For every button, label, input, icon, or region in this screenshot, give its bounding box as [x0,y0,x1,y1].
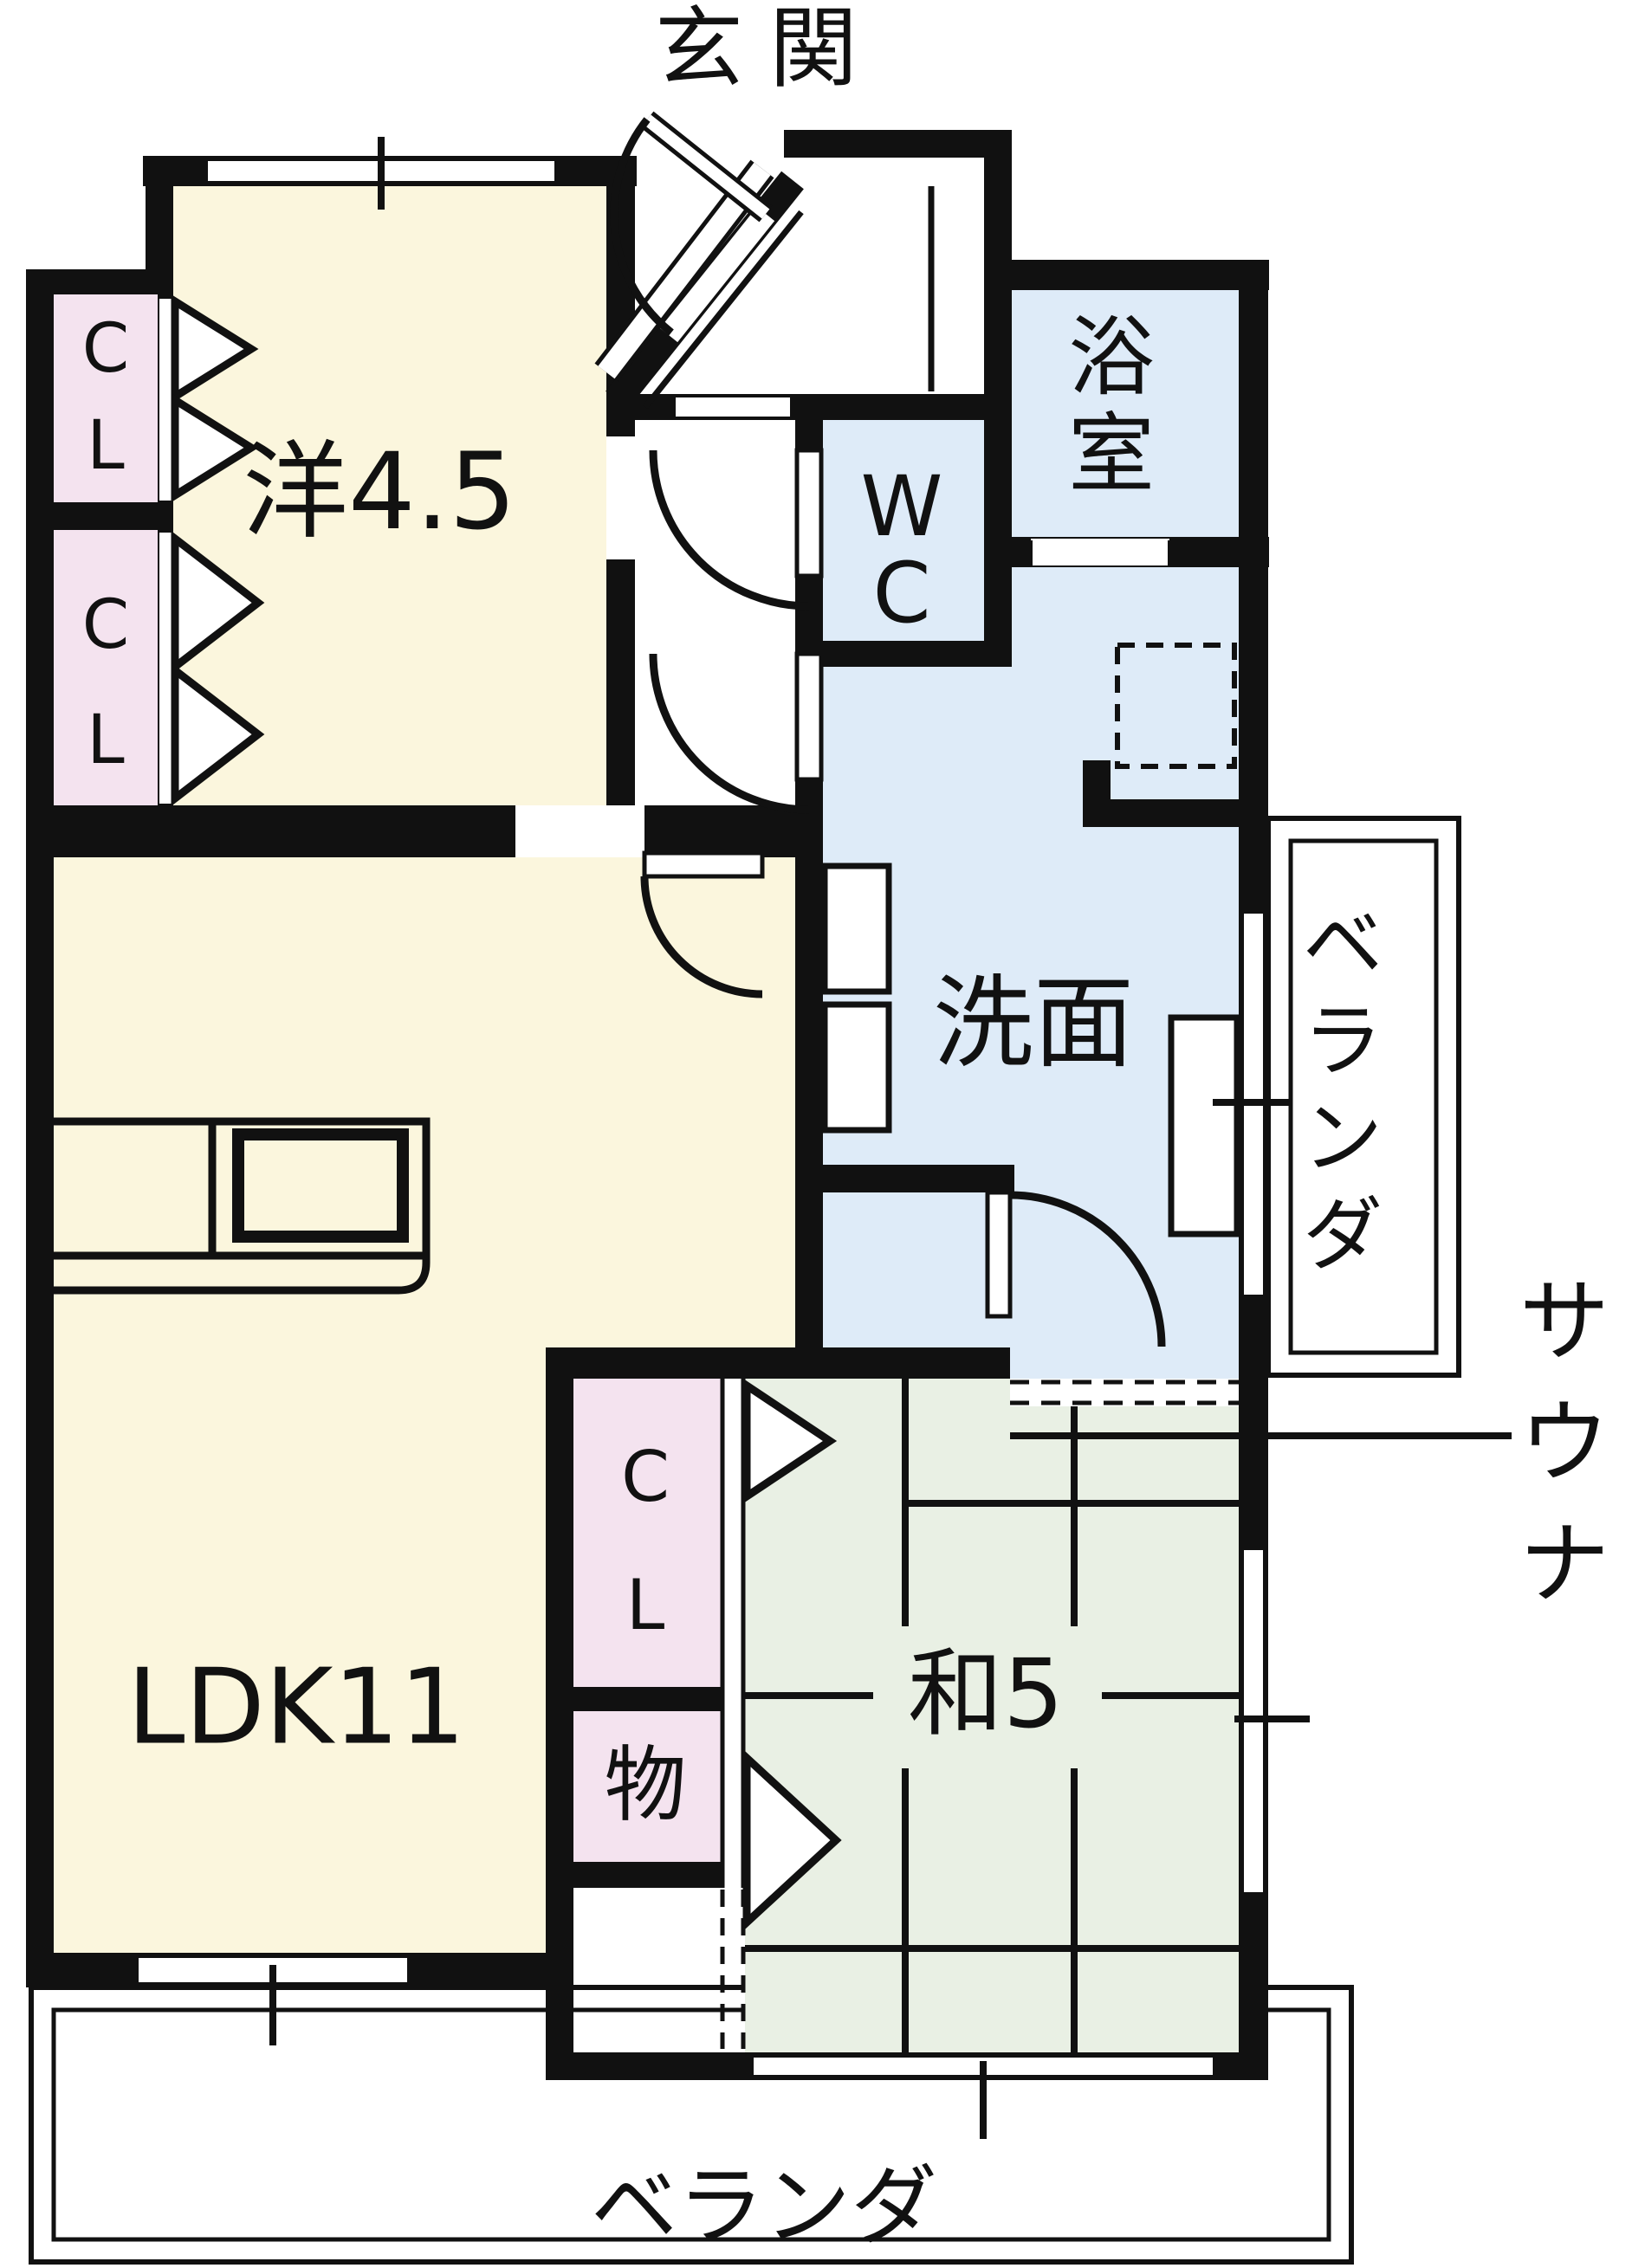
label-washroom: 洗面 [933,966,1134,1082]
wall-ldk-top-left [26,805,515,857]
label-storage: 物 [604,1738,686,1833]
label-ldk: LDK11 [127,1648,466,1768]
bath-door [1031,539,1169,565]
wall-wc-top [823,394,1012,420]
wall-storage-bottom [573,1862,721,1888]
wall-sauna-bottom [546,1347,1010,1379]
label-veranda-bottom: ベランダ [591,2156,937,2258]
vanity-counter [1171,1018,1237,1234]
washroom-fixture [825,1005,889,1130]
wc-door-arc [653,450,809,606]
ldk-door-gap [515,805,644,857]
opening-entrance-hall [676,394,790,420]
closet2-door [159,533,172,804]
label-veranda-right: ベランダ [1303,898,1383,1282]
washroom-fixture [825,866,889,992]
wall-entrance-top [784,130,1012,158]
wall-sauna-left [795,1192,823,1347]
wall-cl-divider [26,502,173,530]
label-wc: WC [861,458,943,642]
sauna-door-leaf [988,1192,1010,1316]
floor-plan: 玄関 洋4.5 CL CL WC 浴室 洗面 サウナ LDK11 和5 CL 物… [0,0,1632,2268]
door-western-room [606,433,635,563]
label-bathroom: 浴室 [1068,307,1155,505]
closet1-door [159,299,172,501]
wc-door-leaf [797,450,821,576]
room-washroom-upper [984,567,1239,671]
closet-lower-front [724,1379,742,1888]
floor-plan-page: 玄関 洋4.5 CL CL WC 浴室 洗面 サウナ LDK11 和5 CL 物… [0,0,1632,2268]
wall-closet-column-left [546,1379,573,2080]
label-sauna: サウナ [1519,1269,1609,1617]
label-entrance: 玄関 [655,0,884,101]
wall-sauna-top [795,1165,1014,1192]
wall-wc-bottom [795,641,1012,667]
wall-bath-top [984,260,1269,290]
wall-ldk-washroom [795,857,823,1192]
label-japanese-room: 和5 [908,1638,1064,1749]
washroom-door-arc [653,654,809,810]
wall-closet-storage-divider [573,1687,721,1711]
wall-ldk-top-right [644,805,823,857]
wall-cl1-top [26,269,173,294]
ldk-door-leaf [644,853,762,876]
label-western-room: 洋4.5 [243,430,516,553]
washroom-door-leaf [797,654,821,779]
